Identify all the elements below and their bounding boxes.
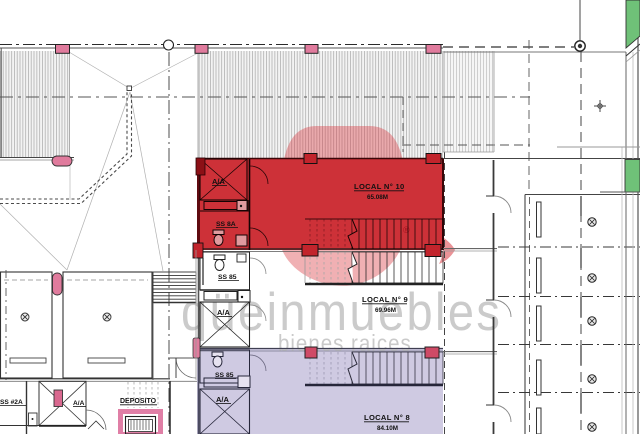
svg-text:A/A: A/A (73, 400, 85, 407)
svg-text:SS #2A: SS #2A (0, 399, 23, 406)
svg-text:SS 8A: SS 8A (216, 221, 236, 228)
svg-text:LOCAL N° 10: LOCAL N° 10 (354, 182, 405, 191)
svg-text:A/A: A/A (212, 177, 226, 186)
svg-text:LOCAL N° 8: LOCAL N° 8 (364, 413, 410, 422)
svg-text:69.96M: 69.96M (375, 307, 396, 314)
svg-text:A/A: A/A (216, 395, 230, 404)
svg-text:DEPOSITO: DEPOSITO (120, 398, 157, 405)
svg-text:LOCAL N° 9: LOCAL N° 9 (362, 295, 408, 304)
svg-text:®: ® (403, 225, 410, 235)
svg-text:65.08M: 65.08M (367, 194, 388, 201)
svg-text:84.10M: 84.10M (377, 425, 398, 432)
svg-text:A/A: A/A (217, 308, 231, 317)
svg-text:SS 85: SS 85 (218, 274, 237, 281)
